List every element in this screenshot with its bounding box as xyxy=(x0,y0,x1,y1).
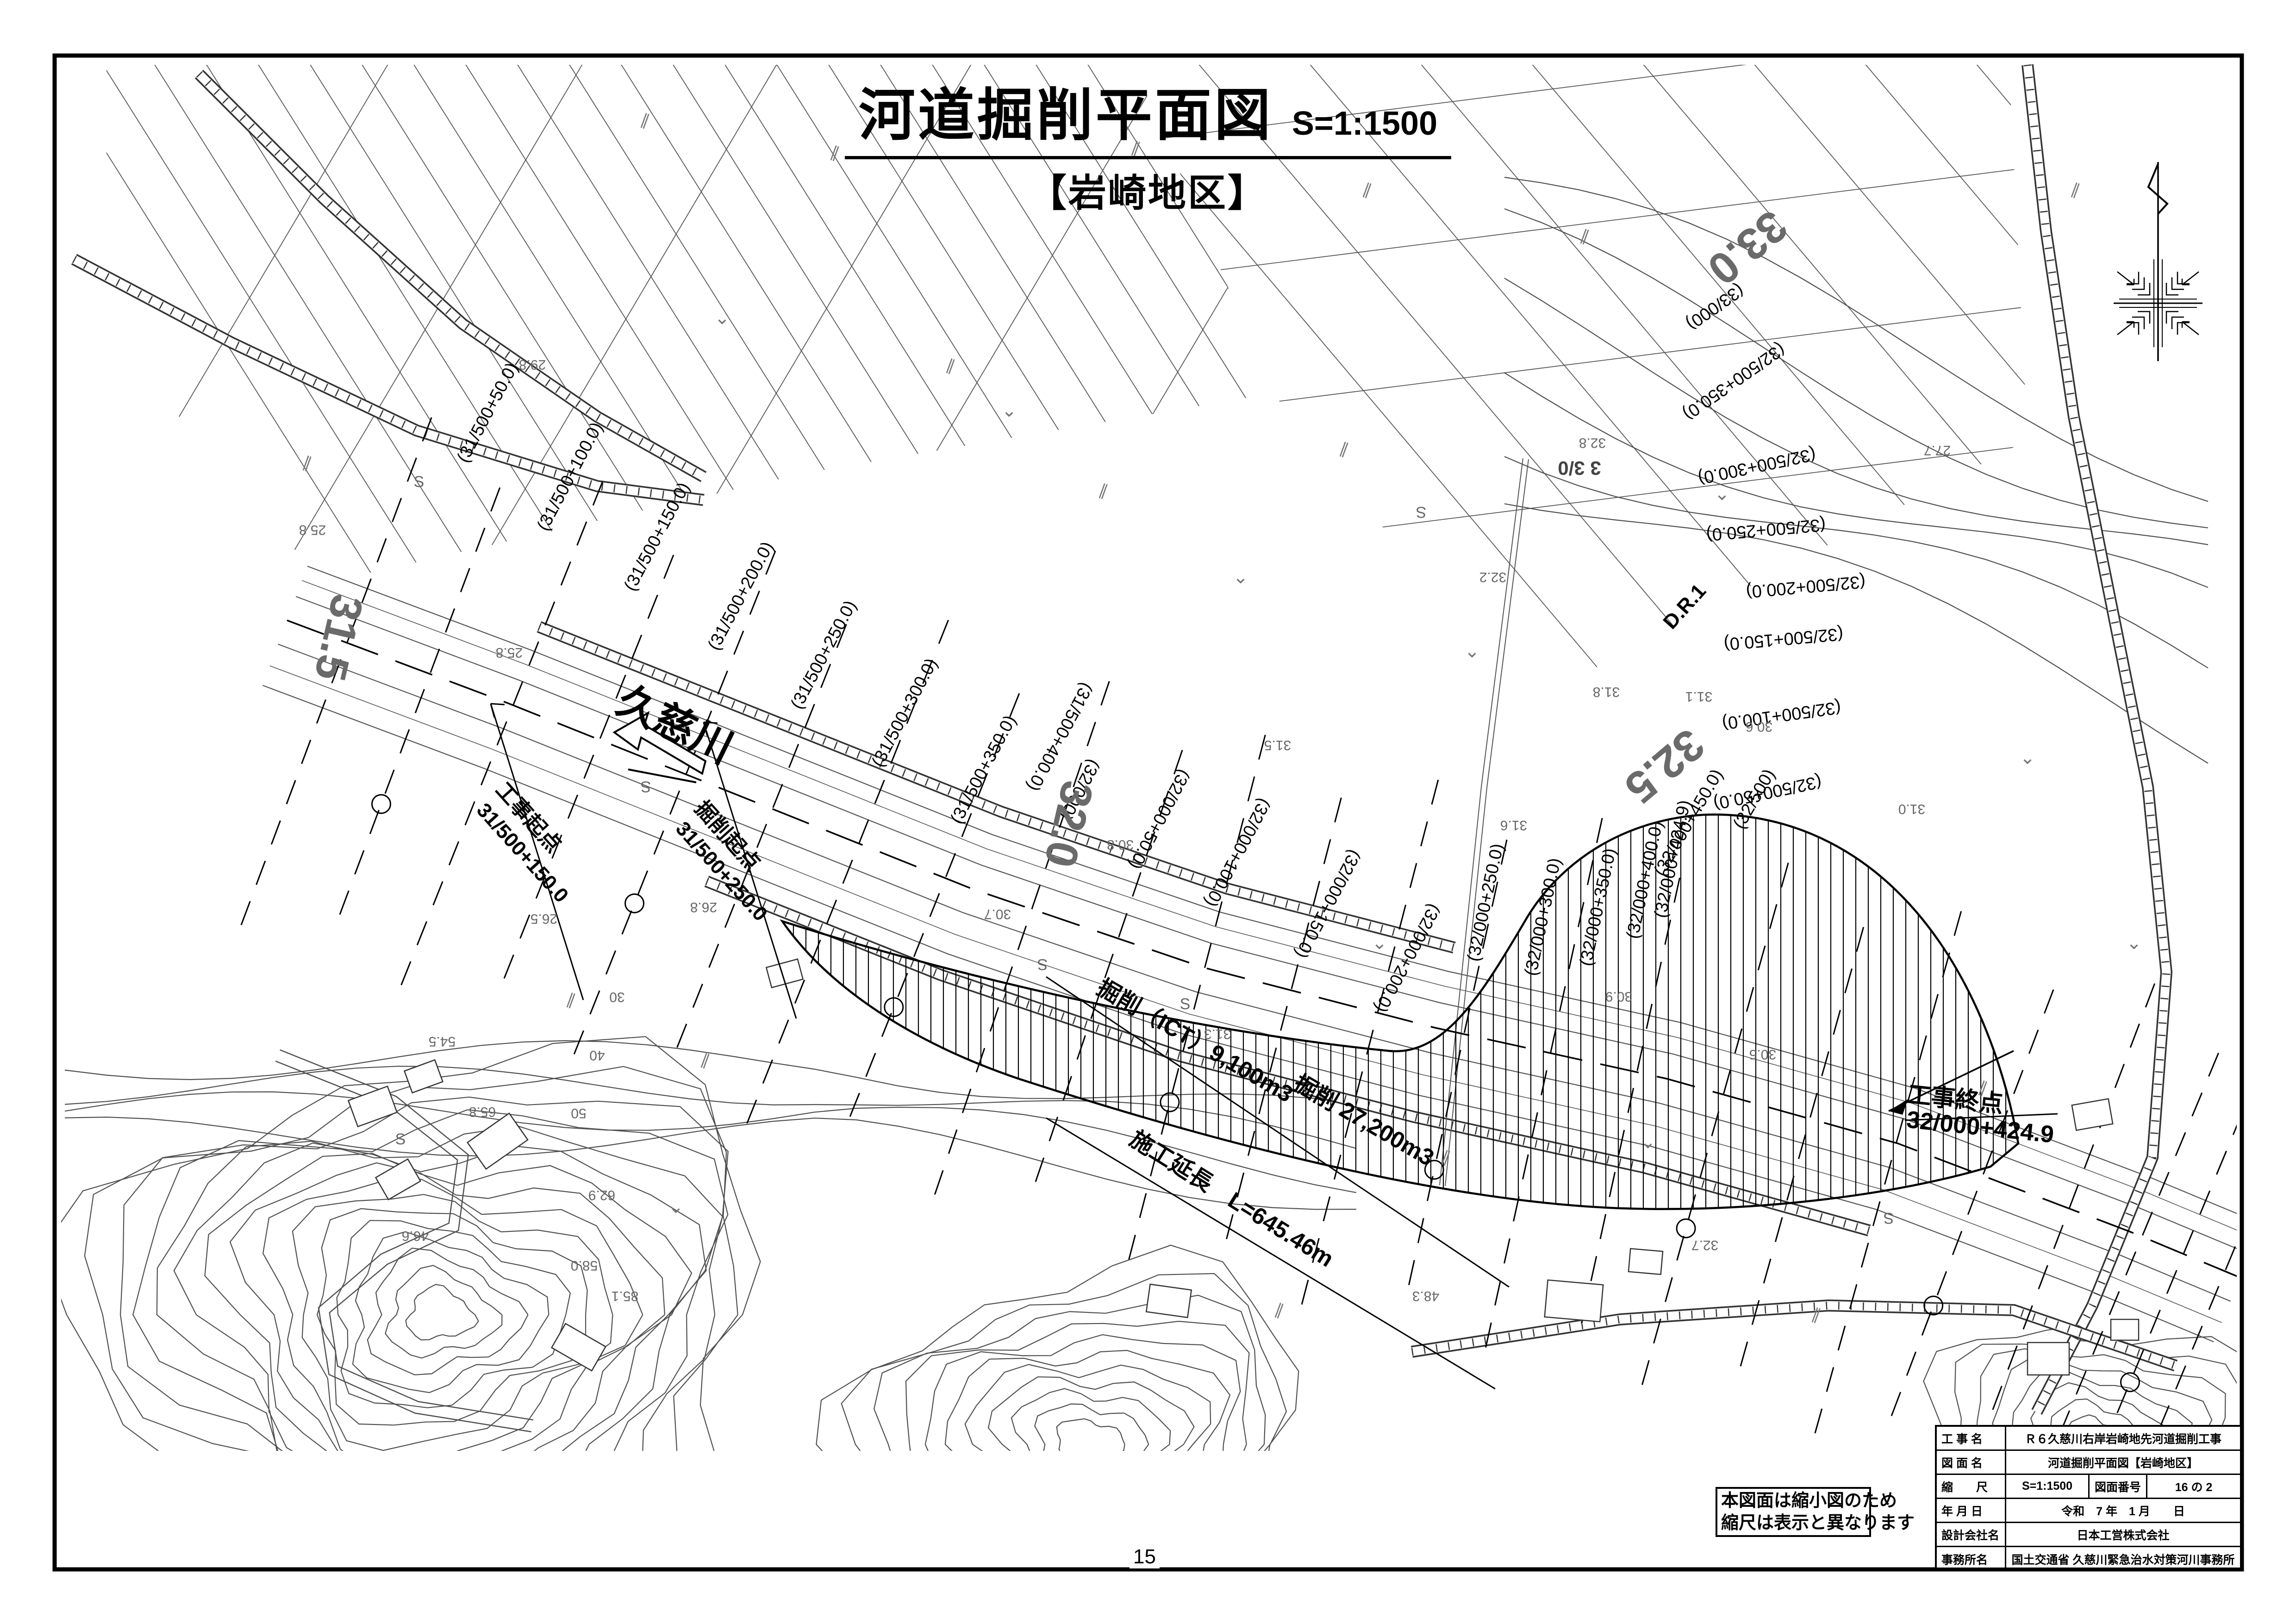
tb-label-zumenmei: 図 面 名 xyxy=(1937,1451,2006,1474)
map-label: ∥ xyxy=(1273,1300,1286,1320)
title-block: 工 事 名 Ｒ６久慈川右岸岩崎地先河道掘削工事 図 面 名 河道掘削平面図【岩崎… xyxy=(1935,1425,2242,1569)
map-label: ∥ xyxy=(300,453,314,473)
map-label: (32/000+50.0) xyxy=(1125,766,1194,873)
map-label: 29.8 xyxy=(519,357,546,372)
map-label: ⌄ xyxy=(1372,933,1387,953)
map-label: 26.5 xyxy=(530,911,557,926)
title-scale: S=1:1500 xyxy=(1292,105,1437,142)
map-label: ∥ xyxy=(1337,439,1351,459)
map-label: (32/500+200.0) xyxy=(1745,572,1866,601)
map-label: 30.8 xyxy=(1107,837,1134,852)
map-label: ⌄ xyxy=(1640,1132,1656,1152)
map-label: 54.5 xyxy=(429,1034,455,1049)
note-line1: 本図面は縮小図のため xyxy=(1721,1490,1869,1512)
section-lines-layer xyxy=(237,418,2296,1545)
map-label: 31.3 xyxy=(1204,1026,1231,1042)
title-area: 河道掘削平面図S=1:1500 【岩崎地区】 xyxy=(0,69,2296,217)
map-label: ∥ xyxy=(699,1050,712,1070)
tb-value-design-company: 日本工営株式会社 xyxy=(2006,1523,2240,1546)
map-label: 65.8 xyxy=(469,1104,496,1119)
map-label: 30.9 xyxy=(1605,989,1632,1004)
map-label: ∥ xyxy=(944,356,957,375)
map-label: 31.5 xyxy=(1264,737,1291,753)
map-label: (32/500+150.0) xyxy=(1723,624,1844,654)
map-label: ∥ xyxy=(564,990,578,1010)
tb-value-zumenmei: 河道掘削平面図【岩崎地区】 xyxy=(2006,1451,2240,1474)
map-label: 31.0 xyxy=(1898,801,1925,817)
map-label: (31/500+250.0) xyxy=(787,597,861,712)
map-label: ⌄ xyxy=(2126,933,2142,953)
map-label: 3 3/0 xyxy=(1558,457,1601,479)
map-label: 32.2 xyxy=(1479,569,1506,585)
tb-value-date: 令和 7 年 1 月 日 xyxy=(2006,1499,2240,1522)
map-label: ⌄ xyxy=(668,1197,684,1217)
tb-label-office: 事務所名 xyxy=(1937,1547,2006,1571)
map-label: (32/000+250.0) xyxy=(1464,842,1508,963)
tb-label-date: 年 月 日 xyxy=(1937,1499,2006,1522)
tb-label-design-company: 設計会社名 xyxy=(1937,1523,2006,1546)
map-label: 30 xyxy=(609,989,624,1005)
map-label: (31/500+300.0) xyxy=(868,655,942,770)
map-label: 46.6 xyxy=(402,1228,429,1243)
map-label: 30.7 xyxy=(984,906,1011,922)
map-label: 58.0 xyxy=(571,1258,598,1273)
title-block-row: 年 月 日 令和 7 年 1 月 日 xyxy=(1937,1499,2240,1523)
map-label: (32/500+350.0) xyxy=(1679,339,1789,424)
map-label: ⌄ xyxy=(1001,400,1017,421)
reduction-note: 本図面は縮小図のため 縮尺は表示と異なります xyxy=(1716,1487,1871,1537)
map-label: (32/500+100.0) xyxy=(1721,697,1842,733)
map-label: 48.3 xyxy=(1412,1288,1439,1304)
page-title: 河道掘削平面図 xyxy=(859,84,1273,147)
map-label: (32/500+300.0) xyxy=(1697,444,1818,488)
map-label: S xyxy=(1180,995,1191,1013)
title-block-row: 設計会社名 日本工営株式会社 xyxy=(1937,1523,2240,1547)
title-block-row: 縮 尺 S=1:1500 図面番号 16 の 2 xyxy=(1937,1475,2240,1499)
map-label: S xyxy=(414,473,424,491)
map-label: ⌄ xyxy=(714,308,730,328)
map-label: ⌄ xyxy=(1233,567,1248,587)
roads-layer xyxy=(74,65,2176,1432)
map-label: ∥ xyxy=(1097,481,1110,500)
tb-value-zumen-bangou: 16 の 2 xyxy=(2147,1475,2240,1498)
map-label: 32.7 xyxy=(1691,1237,1718,1253)
map-label: 31.8 xyxy=(1593,684,1620,700)
map-label: 50 xyxy=(571,1106,586,1121)
drawing-sheet: (31/500+50.0)(31/500+100.0)(31/500+150.0… xyxy=(0,0,2296,1624)
tb-label-shukushaku: 縮 尺 xyxy=(1937,1475,2006,1498)
map-label: 25.8 xyxy=(299,522,326,537)
map-label: 85.1 xyxy=(611,1288,638,1304)
map-label: (32/000+200.0) xyxy=(1371,901,1444,1016)
title-block-row: 事務所名 国土交通省 久慈川緊急治水対策河川事務所 xyxy=(1937,1547,2240,1571)
contour-lines-layer xyxy=(42,177,2262,1624)
map-label: ∥ xyxy=(1578,226,1591,246)
map-label: S xyxy=(641,778,651,795)
tb-value-shukushaku: S=1:1500 xyxy=(2006,1475,2090,1498)
map-label: 31.5 xyxy=(305,590,373,685)
map-label: ⌄ xyxy=(1464,641,1480,662)
map-label: 30.6 xyxy=(1746,719,1772,734)
map-label: 40 xyxy=(589,1048,605,1063)
title-underline: 河道掘削平面図S=1:1500 xyxy=(845,69,1451,159)
map-label: 26.8 xyxy=(690,899,717,915)
map-label: 32.8 xyxy=(1579,435,1606,450)
title-subtitle: 【岩崎地区】 xyxy=(0,162,2296,217)
map-label: 32.0 xyxy=(1035,776,1103,872)
map-label: 30.5 xyxy=(1749,1047,1776,1062)
map-label: S xyxy=(1037,956,1048,973)
tb-label-koujimei: 工 事 名 xyxy=(1937,1427,2006,1449)
map-label: ⌄ xyxy=(2020,748,2035,768)
map-label: 31.1 xyxy=(1685,689,1712,704)
tb-label-zumen-bangou: 図面番号 xyxy=(2090,1475,2147,1498)
map-label: S xyxy=(395,1131,406,1148)
tb-value-koujimei: Ｒ６久慈川右岸岩崎地先河道掘削工事 xyxy=(2006,1427,2240,1449)
page-number: 15 xyxy=(1129,1545,1160,1568)
map-label: 25.8 xyxy=(496,645,523,660)
map-label: 31.6 xyxy=(1500,818,1527,833)
title-block-row: 工 事 名 Ｒ６久慈川右岸岩崎地先河道掘削工事 xyxy=(1937,1427,2240,1451)
map-label: S xyxy=(1884,1209,1894,1227)
tb-value-office: 国土交通省 久慈川緊急治水対策河川事務所 xyxy=(2006,1547,2240,1571)
map-label: 62.9 xyxy=(588,1187,615,1203)
map-canvas: (31/500+50.0)(31/500+100.0)(31/500+150.0… xyxy=(0,0,2296,1624)
map-label: D.R.1 xyxy=(1659,580,1710,633)
map-label: ⌄ xyxy=(1714,484,1730,504)
title-block-row: 図 面 名 河道掘削平面図【岩崎地区】 xyxy=(1937,1451,2240,1475)
note-line2: 縮尺は表示と異なります xyxy=(1721,1512,1869,1534)
map-label: 27.7 xyxy=(1924,443,1951,458)
map-label: S xyxy=(1416,503,1427,521)
